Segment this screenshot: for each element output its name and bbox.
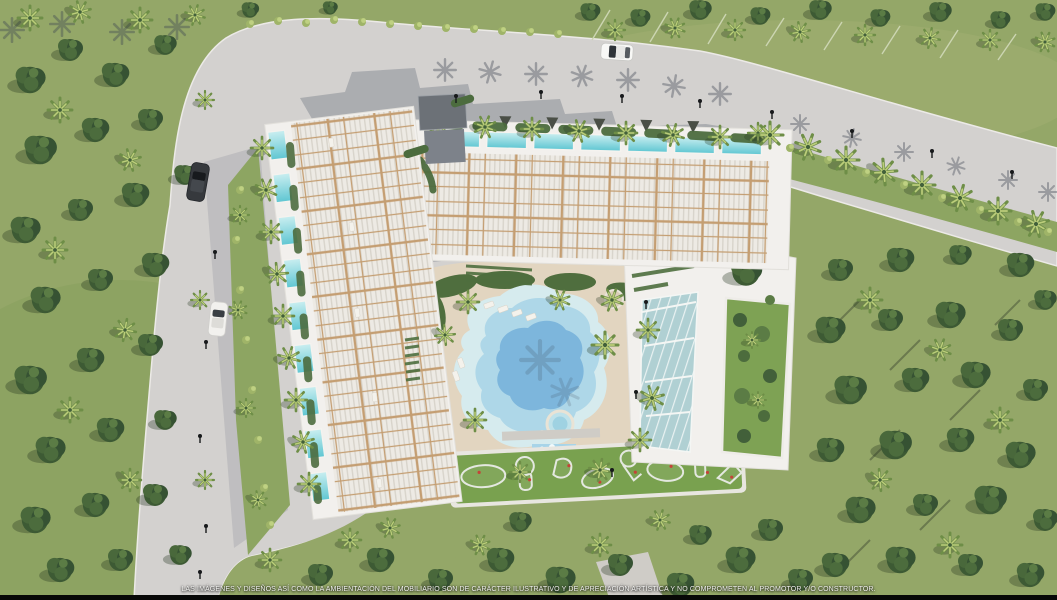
disclaimer-text: LAS IMÁGENES Y DISEÑOS ASÍ COMO LA AMBIE… [0,586,1057,595]
bottom-black-bar [0,595,1057,600]
aerial-resort-render: LAS IMÁGENES Y DISEÑOS ASÍ COMO LA AMBIE… [0,0,1057,600]
roof-garden-court [722,298,790,458]
glass-atrium [640,292,698,452]
white-car-parked [208,301,228,337]
right-wing-building [624,240,796,470]
site-plan-svg [0,0,1057,600]
white-car-driving [600,43,633,61]
